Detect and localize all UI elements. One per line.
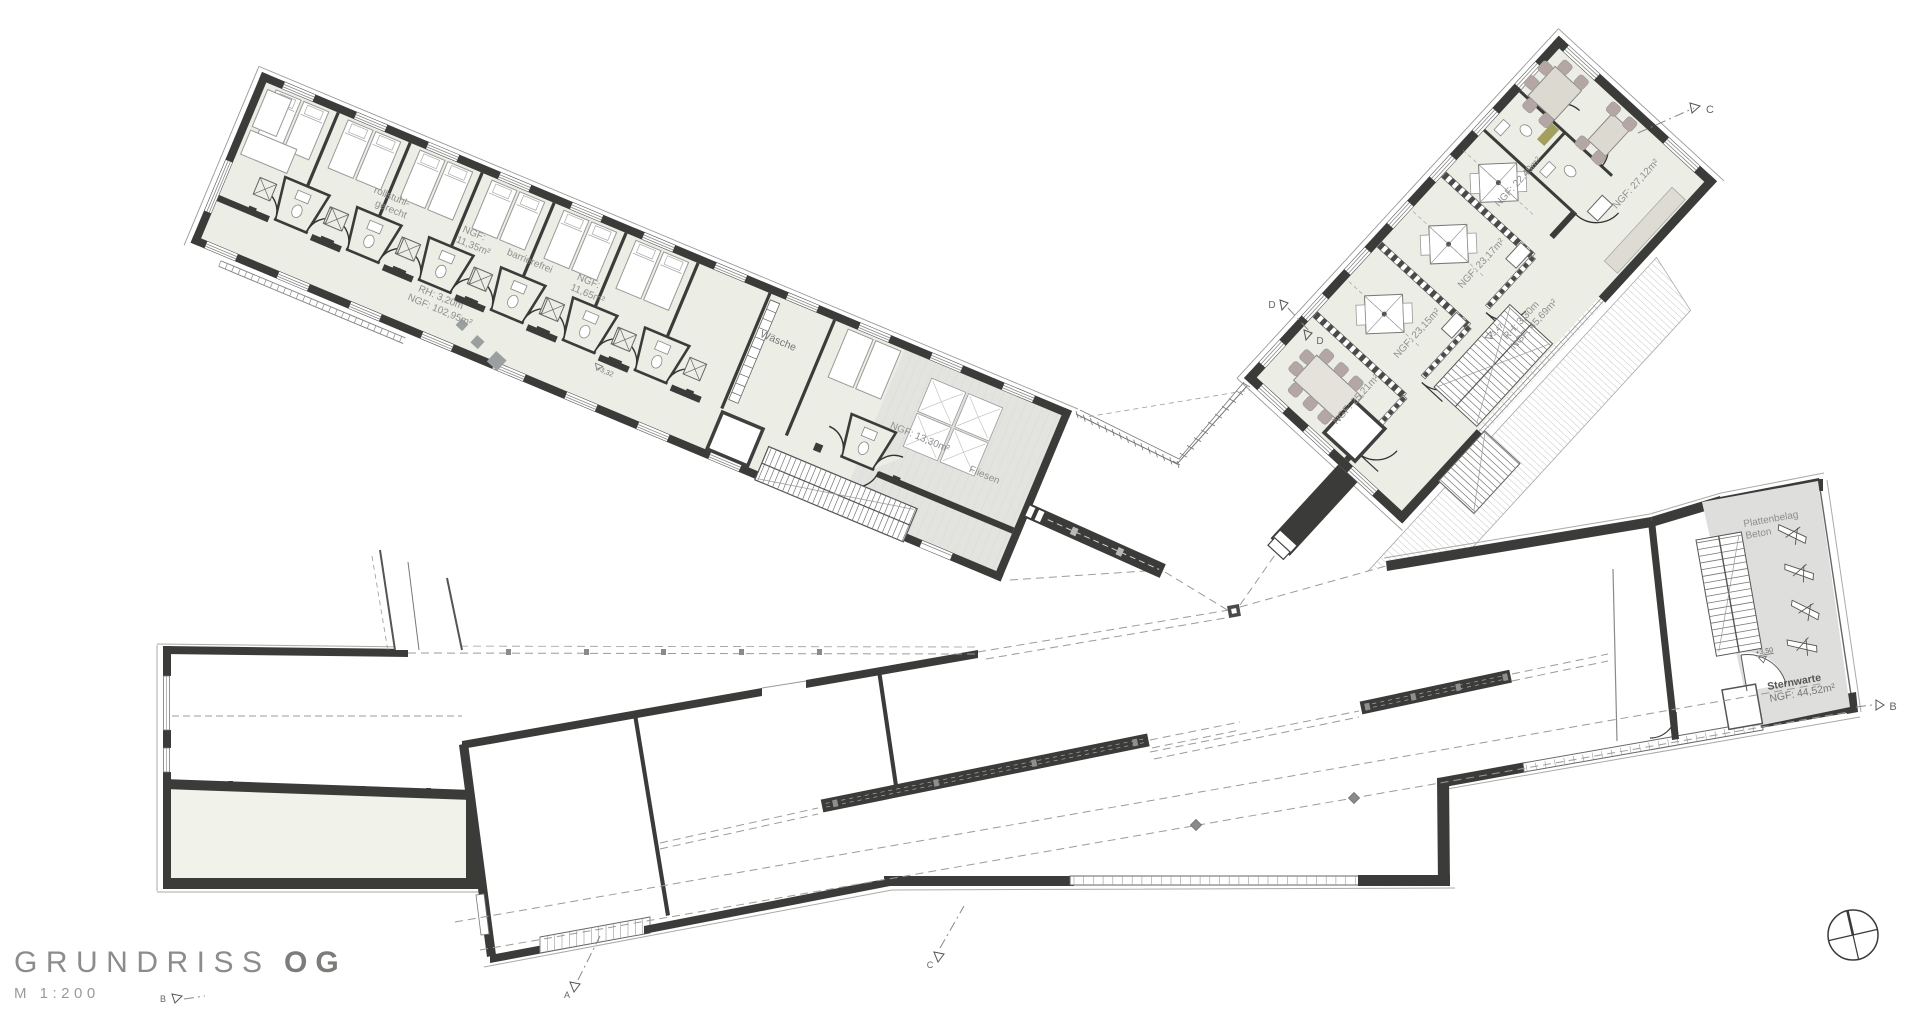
svg-text:C: C — [1706, 104, 1714, 116]
svg-text:M 1:200: M 1:200 — [14, 985, 100, 1002]
svg-text:C: C — [927, 960, 934, 970]
svg-text:B: B — [160, 994, 166, 1004]
svg-text:A: A — [564, 990, 570, 1000]
svg-text:B: B — [1889, 701, 1896, 713]
svg-text:OG: OG — [284, 946, 347, 979]
svg-text:D: D — [1316, 336, 1323, 347]
svg-text:GRUNDRISS: GRUNDRISS — [14, 946, 271, 979]
svg-text:D: D — [1268, 300, 1275, 311]
